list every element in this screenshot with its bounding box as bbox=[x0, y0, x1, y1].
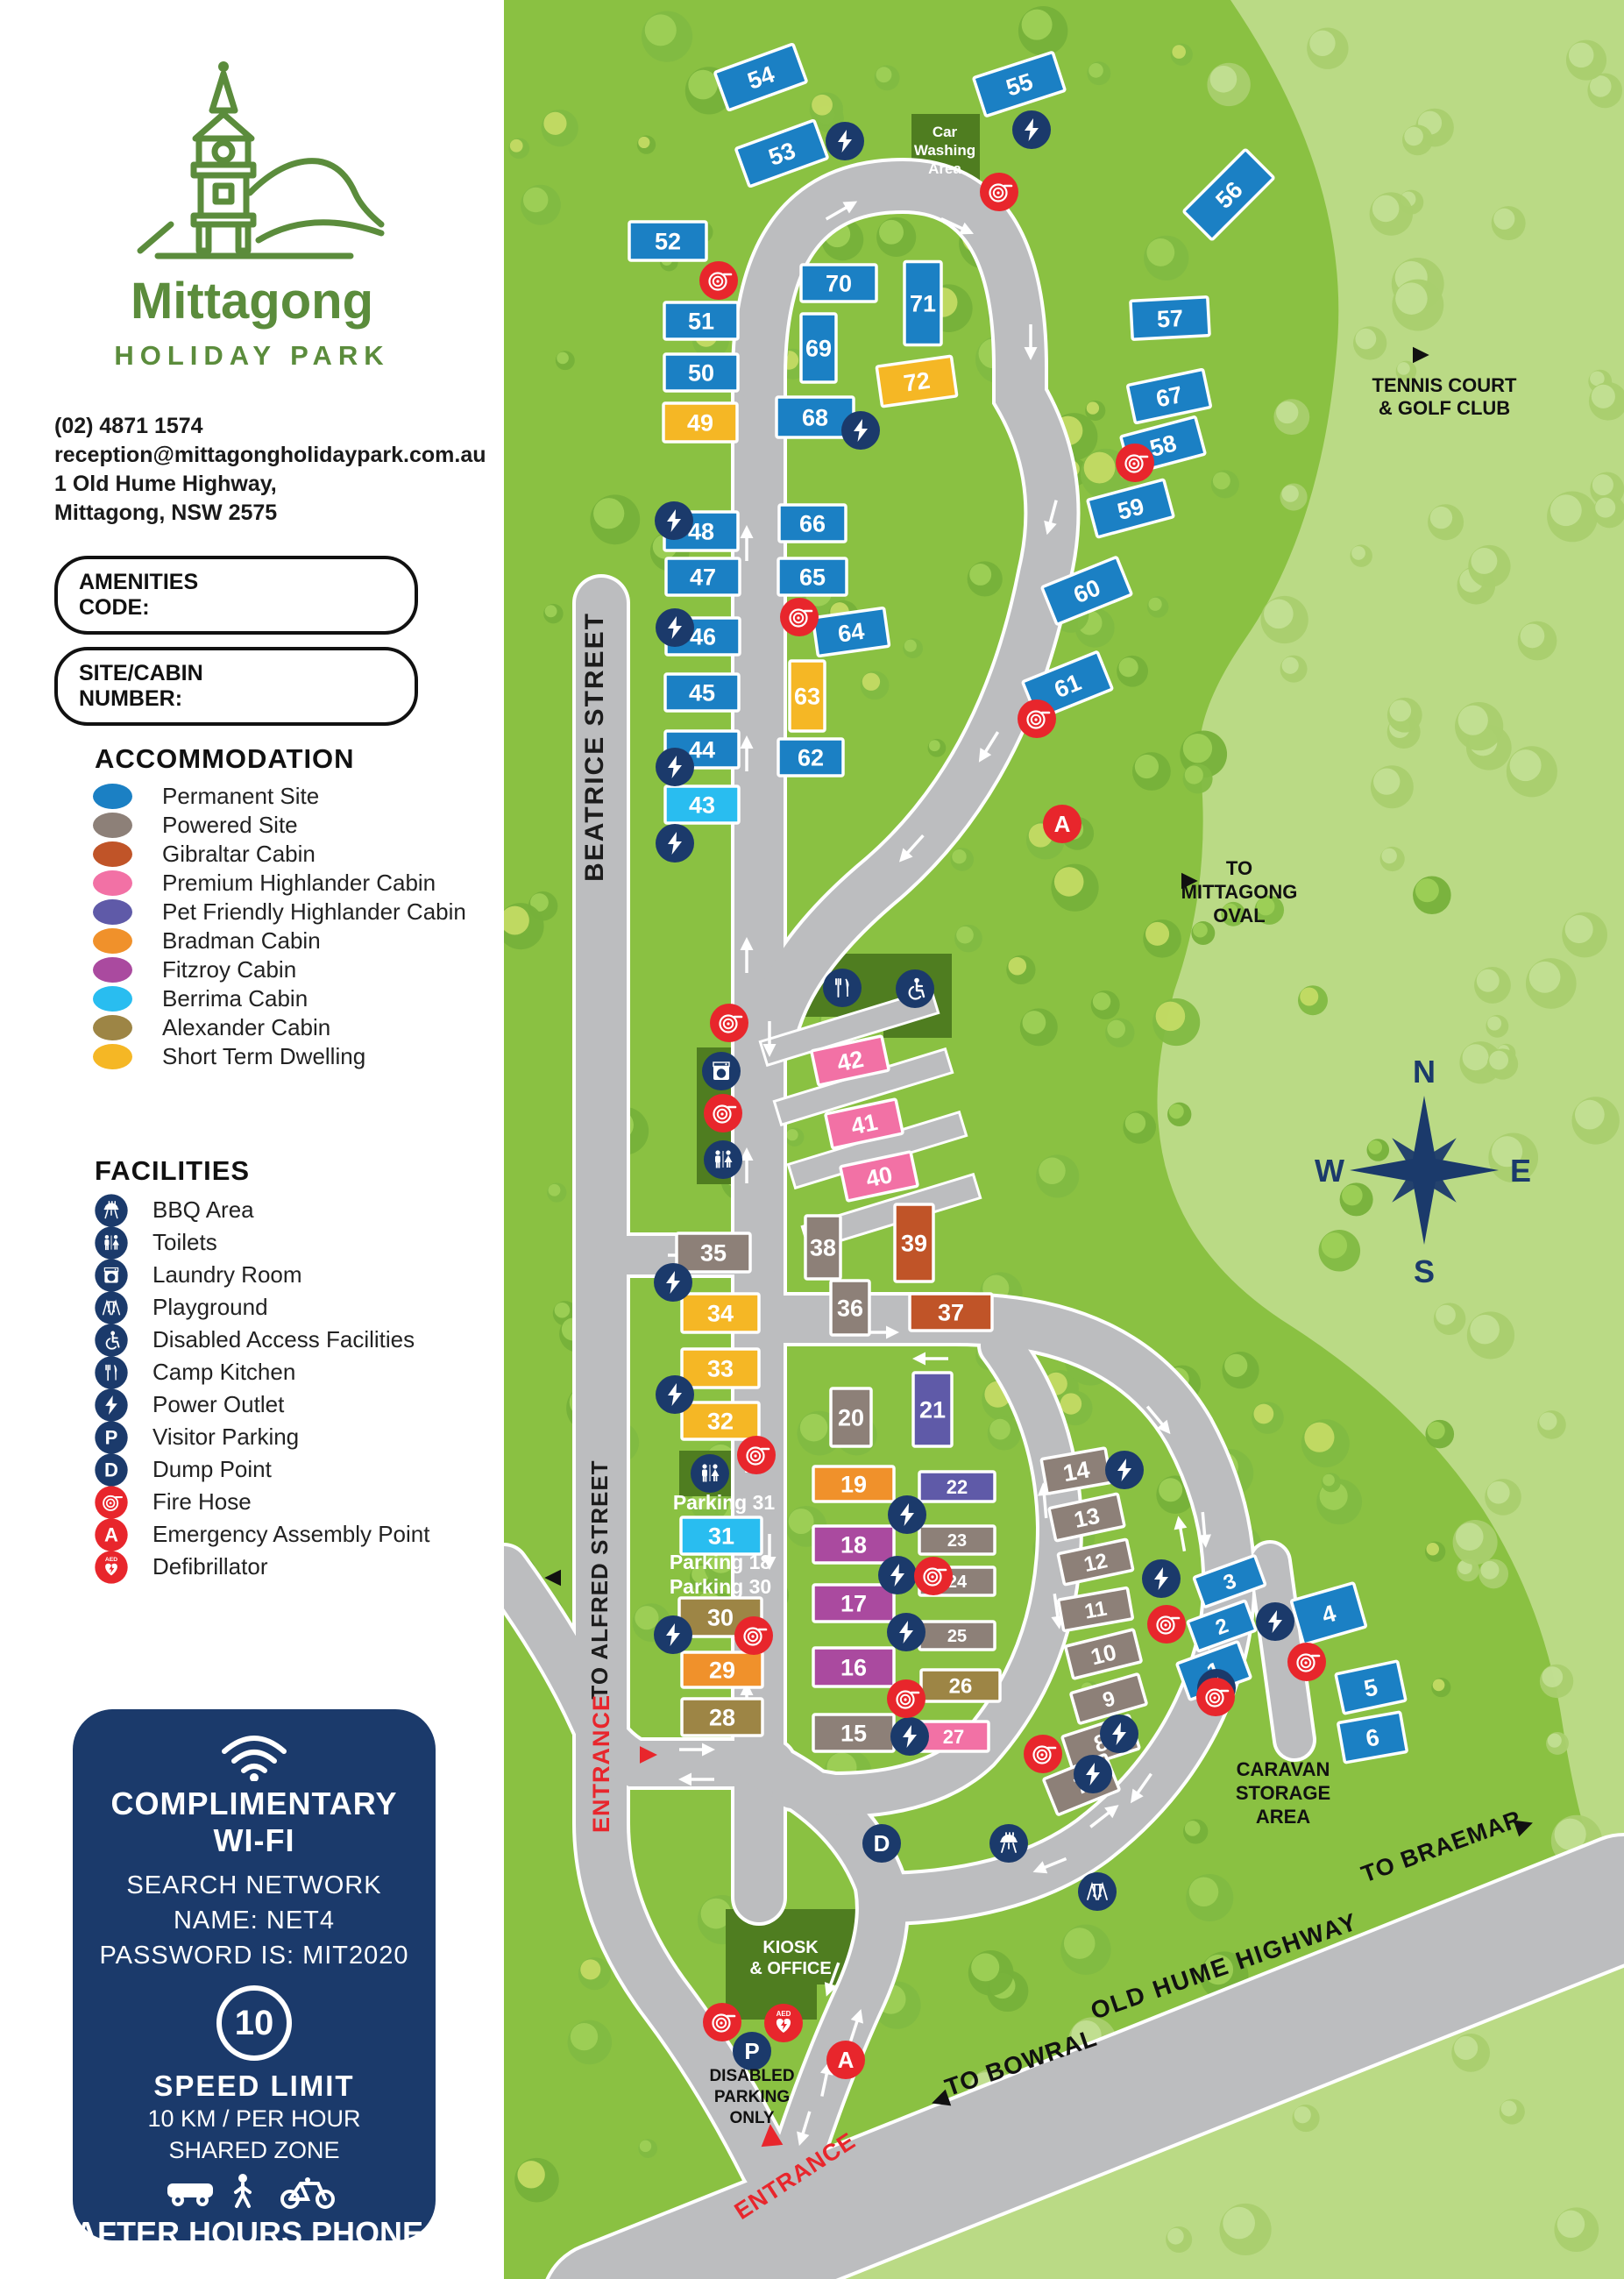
playground-icon bbox=[93, 1289, 130, 1326]
site-21: 21 bbox=[913, 1373, 952, 1446]
site-33: 33 bbox=[682, 1349, 759, 1388]
facility-bbq: BBQ Area bbox=[93, 1194, 429, 1226]
accommodation-color-swatch bbox=[93, 784, 132, 809]
facility-label: BBQ Area bbox=[152, 1196, 254, 1224]
site-37: 37 bbox=[910, 1294, 992, 1331]
wifi-icon bbox=[217, 1729, 291, 1781]
site-26: 26 bbox=[921, 1670, 1000, 1701]
amenities-code-label-2: CODE: bbox=[79, 595, 150, 620]
fire-icon bbox=[980, 173, 1018, 211]
svg-text:26: 26 bbox=[949, 1675, 973, 1699]
site-28: 28 bbox=[682, 1699, 762, 1736]
svg-text:14: 14 bbox=[1061, 1456, 1092, 1487]
accommodation-type-label: Permanent Site bbox=[162, 783, 319, 810]
svg-text:23: 23 bbox=[947, 1531, 967, 1551]
fire-icon bbox=[703, 2003, 741, 2041]
facility-dump: DDump Point bbox=[93, 1453, 429, 1486]
parkP-icon: P bbox=[93, 1419, 130, 1456]
accommodation-color-swatch bbox=[93, 1044, 132, 1069]
site-19: 19 bbox=[813, 1466, 894, 1502]
svg-text:71: 71 bbox=[910, 291, 936, 317]
power-icon bbox=[1105, 1451, 1144, 1489]
accommodation-type-label: Bradman Cabin bbox=[162, 927, 321, 955]
park-phone: (02) 4871 1574 bbox=[54, 412, 503, 441]
svg-text:47: 47 bbox=[690, 564, 716, 591]
svg-text:D: D bbox=[874, 1830, 890, 1857]
site-29: 29 bbox=[682, 1652, 762, 1687]
wifi-line-3: PASSWORD IS: MIT2020 bbox=[73, 1938, 436, 1973]
laundry-icon bbox=[93, 1257, 130, 1294]
power-icon bbox=[93, 1387, 130, 1423]
facility-label: Laundry Room bbox=[152, 1261, 302, 1289]
svg-text:35: 35 bbox=[700, 1240, 727, 1267]
svg-text:62: 62 bbox=[798, 745, 824, 771]
accommodation-color-swatch bbox=[93, 957, 132, 983]
power-icon bbox=[890, 1717, 929, 1756]
svg-text:27: 27 bbox=[943, 1726, 964, 1748]
power-icon bbox=[656, 748, 694, 786]
power-icon bbox=[656, 824, 694, 863]
fire-icon bbox=[1287, 1643, 1326, 1681]
facility-label: Defibrillator bbox=[152, 1553, 268, 1580]
svg-text:69: 69 bbox=[805, 336, 832, 362]
speed-limit-sign: 10 bbox=[216, 1985, 292, 2061]
park-address-1: 1 Old Hume Highway, bbox=[54, 470, 503, 499]
fire-icon bbox=[1196, 1678, 1235, 1716]
accommodation-type-label: Alexander Cabin bbox=[162, 1014, 330, 1041]
site-6: 6 bbox=[1338, 1712, 1408, 1763]
accommodation-color-swatch bbox=[93, 870, 132, 896]
facility-label: Visitor Parking bbox=[152, 1423, 299, 1451]
site-66: 66 bbox=[779, 505, 846, 542]
wifi-info-panel: COMPLIMENTARY WI-FI SEARCH NETWORK NAME:… bbox=[73, 1709, 436, 2240]
speed-limit-line-1: 10 KM / PER HOUR bbox=[73, 2103, 436, 2134]
svg-text:17: 17 bbox=[840, 1591, 867, 1617]
fire-icon bbox=[1116, 444, 1154, 482]
svg-text:18: 18 bbox=[840, 1532, 867, 1558]
svg-text:A: A bbox=[104, 1523, 118, 1545]
disabled-icon bbox=[896, 969, 934, 1008]
svg-text:S: S bbox=[1414, 1253, 1435, 1289]
park-email: reception@mittagongholidaypark.com.au bbox=[54, 441, 503, 470]
site-cabin-label-2: NUMBER: bbox=[79, 686, 182, 711]
site-49: 49 bbox=[663, 403, 737, 442]
facility-label: Fire Hose bbox=[152, 1488, 252, 1516]
site-52: 52 bbox=[629, 222, 706, 260]
accommodation-type-pow: Powered Site bbox=[93, 811, 466, 840]
svg-text:AED: AED bbox=[105, 1557, 117, 1563]
site-72: 72 bbox=[876, 356, 957, 407]
site-20: 20 bbox=[831, 1388, 871, 1446]
site-62: 62 bbox=[778, 739, 843, 776]
svg-text:43: 43 bbox=[689, 792, 715, 819]
site-32: 32 bbox=[682, 1402, 759, 1439]
site-18: 18 bbox=[813, 1526, 894, 1563]
site-65: 65 bbox=[778, 558, 847, 595]
fire-icon bbox=[1147, 1605, 1186, 1644]
site-43: 43 bbox=[665, 786, 739, 823]
facility-fire: Fire Hose bbox=[93, 1486, 429, 1518]
assembly-icon: A bbox=[826, 2041, 865, 2079]
fire-icon bbox=[734, 1616, 773, 1655]
svg-text:70: 70 bbox=[826, 271, 852, 297]
svg-text:21: 21 bbox=[919, 1397, 946, 1423]
site-16: 16 bbox=[813, 1648, 894, 1686]
svg-text:41: 41 bbox=[848, 1109, 880, 1140]
svg-text:AED: AED bbox=[777, 2010, 791, 2018]
svg-text:29: 29 bbox=[709, 1658, 735, 1684]
svg-text:D: D bbox=[104, 1459, 118, 1480]
power-icon bbox=[887, 1613, 925, 1651]
accommodation-type-fitz: Fitzroy Cabin bbox=[93, 955, 466, 984]
dump-icon: D bbox=[93, 1452, 130, 1488]
facility-toilets: Toilets bbox=[93, 1226, 429, 1259]
site-39: 39 bbox=[895, 1204, 933, 1281]
svg-text:65: 65 bbox=[799, 564, 826, 591]
speed-limit-line-2: SHARED ZONE bbox=[73, 2134, 436, 2166]
accommodation-type-label: Gibraltar Cabin bbox=[162, 841, 316, 868]
power-icon bbox=[888, 1495, 926, 1534]
site-25: 25 bbox=[919, 1622, 995, 1650]
shared-zone-icons bbox=[162, 2171, 346, 2210]
svg-text:19: 19 bbox=[840, 1472, 867, 1498]
site-15: 15 bbox=[813, 1715, 894, 1751]
aed-icon: AED bbox=[93, 1549, 130, 1586]
accommodation-type-label: Berrima Cabin bbox=[162, 985, 308, 1012]
park-logo bbox=[83, 53, 434, 298]
svg-text:20: 20 bbox=[838, 1405, 864, 1431]
assembly-icon: A bbox=[1043, 805, 1081, 843]
accommodation-title: ACCOMMODATION bbox=[95, 743, 355, 775]
playground-icon bbox=[1078, 1872, 1117, 1911]
wifi-line-1: SEARCH NETWORK bbox=[73, 1868, 436, 1903]
park-address-2: Mittagong, NSW 2575 bbox=[54, 499, 503, 528]
accommodation-type-short: Short Term Dwelling bbox=[93, 1042, 466, 1071]
accommodation-type-label: Short Term Dwelling bbox=[162, 1043, 365, 1070]
assembly-icon: A bbox=[93, 1516, 130, 1553]
accommodation-type-label: Pet Friendly Highlander Cabin bbox=[162, 898, 466, 926]
power-icon bbox=[656, 608, 694, 647]
parkP-icon: P bbox=[733, 2032, 771, 2070]
power-icon bbox=[1100, 1715, 1138, 1753]
accommodation-type-pet: Pet Friendly Highlander Cabin bbox=[93, 898, 466, 927]
label-entrance-west: ENTRANCE bbox=[588, 1694, 614, 1833]
fire-icon bbox=[737, 1436, 776, 1474]
facility-label: Dump Point bbox=[152, 1456, 272, 1483]
svg-text:25: 25 bbox=[947, 1627, 967, 1646]
site-31: 31 bbox=[681, 1517, 762, 1554]
label-parking-31: Parking 31 bbox=[673, 1491, 776, 1514]
site-22: 22 bbox=[919, 1472, 995, 1502]
site-57: 57 bbox=[1131, 297, 1209, 340]
svg-text:45: 45 bbox=[689, 680, 715, 706]
site-cabin-label-1: SITE/CABIN bbox=[79, 661, 203, 685]
laundry-icon bbox=[702, 1052, 741, 1090]
accommodation-legend: Permanent SitePowered SiteGibraltar Cabi… bbox=[93, 782, 466, 1071]
power-icon bbox=[656, 1375, 694, 1414]
svg-text:A: A bbox=[838, 2047, 855, 2073]
bbq-icon bbox=[93, 1192, 130, 1229]
aed-icon: AED bbox=[764, 2004, 803, 2042]
toilets-icon bbox=[691, 1454, 729, 1493]
facility-label: Toilets bbox=[152, 1229, 217, 1256]
dump-icon: D bbox=[862, 1824, 901, 1863]
accommodation-type-alex: Alexander Cabin bbox=[93, 1013, 466, 1042]
fire-icon bbox=[704, 1094, 742, 1132]
site-23: 23 bbox=[919, 1526, 995, 1554]
facility-label: Emergency Assembly Point bbox=[152, 1521, 429, 1548]
park-map: 5453555652515049484746454443706971726866… bbox=[504, 0, 1624, 2279]
power-icon bbox=[826, 122, 864, 160]
facility-label: Power Outlet bbox=[152, 1391, 284, 1418]
svg-text:57: 57 bbox=[1156, 305, 1184, 333]
svg-text:A: A bbox=[1054, 811, 1071, 837]
power-icon bbox=[878, 1556, 917, 1594]
accommodation-type-prem: Premium Highlander Cabin bbox=[93, 869, 466, 898]
svg-text:28: 28 bbox=[709, 1705, 735, 1731]
accommodation-type-perm: Permanent Site bbox=[93, 782, 466, 811]
disabled-icon bbox=[93, 1322, 130, 1359]
facility-campkitchen: Camp Kitchen bbox=[93, 1356, 429, 1388]
svg-text:16: 16 bbox=[840, 1655, 867, 1681]
accommodation-color-swatch bbox=[93, 899, 132, 925]
svg-text:P: P bbox=[105, 1426, 118, 1448]
accommodation-type-label: Powered Site bbox=[162, 812, 298, 839]
svg-text:P: P bbox=[744, 2038, 759, 2064]
svg-text:42: 42 bbox=[834, 1046, 866, 1077]
svg-text:51: 51 bbox=[688, 309, 714, 335]
after-hours-phone: 0497 035 654 bbox=[73, 2253, 436, 2279]
svg-text:68: 68 bbox=[802, 405, 828, 431]
label-tennis-court: TENNIS COURT& GOLF CLUB bbox=[1372, 374, 1518, 419]
label-beatrice-street: BEATRICE STREET bbox=[580, 612, 609, 882]
amenities-code-label-1: AMENITIES bbox=[79, 570, 198, 594]
site-64: 64 bbox=[812, 608, 889, 657]
site-17: 17 bbox=[813, 1585, 894, 1622]
campkitchen-icon bbox=[93, 1354, 130, 1391]
site-51: 51 bbox=[664, 302, 738, 339]
power-icon bbox=[841, 411, 880, 450]
facility-label: Disabled Access Facilities bbox=[152, 1326, 415, 1353]
park-name: Mittagong bbox=[0, 272, 504, 330]
accommodation-color-swatch bbox=[93, 841, 132, 867]
site-63: 63 bbox=[790, 661, 825, 731]
svg-text:33: 33 bbox=[707, 1356, 734, 1382]
fire-icon bbox=[914, 1557, 953, 1595]
svg-text:12: 12 bbox=[1081, 1549, 1110, 1577]
wifi-title-2: WI-FI bbox=[73, 1822, 436, 1859]
left-panel: Mittagong HOLIDAY PARK (02) 4871 1574 re… bbox=[0, 0, 504, 2279]
power-icon bbox=[1012, 110, 1051, 149]
fire-icon bbox=[93, 1484, 130, 1521]
site-36: 36 bbox=[831, 1281, 869, 1335]
accommodation-color-swatch bbox=[93, 813, 132, 838]
svg-text:37: 37 bbox=[938, 1300, 964, 1326]
site-69: 69 bbox=[801, 314, 836, 382]
power-icon bbox=[1142, 1559, 1181, 1598]
facility-label: Camp Kitchen bbox=[152, 1359, 295, 1386]
power-icon bbox=[1256, 1602, 1294, 1641]
facility-aed: AEDDefibrillator bbox=[93, 1551, 429, 1583]
facilities-title: FACILITIES bbox=[95, 1155, 250, 1187]
fire-icon bbox=[780, 598, 819, 636]
fire-icon bbox=[699, 261, 738, 300]
fire-icon bbox=[1018, 699, 1056, 738]
facility-label: Playground bbox=[152, 1294, 268, 1321]
fire-icon bbox=[887, 1679, 925, 1718]
site-34: 34 bbox=[682, 1294, 759, 1332]
facility-disabled: Disabled Access Facilities bbox=[93, 1324, 429, 1356]
park-subtitle: HOLIDAY PARK bbox=[0, 340, 504, 372]
site-45: 45 bbox=[665, 674, 739, 711]
svg-text:50: 50 bbox=[688, 360, 714, 387]
svg-text:39: 39 bbox=[901, 1231, 927, 1257]
svg-text:E: E bbox=[1510, 1153, 1531, 1189]
svg-text:52: 52 bbox=[655, 229, 681, 255]
site-38: 38 bbox=[805, 1216, 840, 1279]
svg-text:66: 66 bbox=[799, 511, 826, 537]
svg-text:72: 72 bbox=[902, 367, 932, 397]
after-hours-title: AFTER HOURS PHONE: bbox=[73, 2214, 436, 2253]
svg-text:64: 64 bbox=[836, 618, 866, 648]
label-to-alfred-street: TO ALFRED STREET bbox=[586, 1459, 613, 1699]
poster-page: Mittagong HOLIDAY PARK (02) 4871 1574 re… bbox=[0, 0, 1624, 2279]
accommodation-type-gib: Gibraltar Cabin bbox=[93, 840, 466, 869]
wifi-title-1: COMPLIMENTARY bbox=[73, 1786, 436, 1822]
toilets-icon bbox=[93, 1225, 130, 1261]
svg-text:13: 13 bbox=[1072, 1502, 1103, 1533]
svg-text:30: 30 bbox=[707, 1605, 734, 1631]
amenities-code-box: AMENITIES CODE: bbox=[54, 556, 418, 635]
wifi-line-2: NAME: NET4 bbox=[73, 1903, 436, 1938]
svg-text:44: 44 bbox=[689, 737, 715, 763]
svg-text:W: W bbox=[1315, 1153, 1344, 1189]
power-icon bbox=[654, 1615, 692, 1654]
power-icon bbox=[1074, 1755, 1112, 1793]
site-71: 71 bbox=[904, 262, 941, 345]
svg-text:36: 36 bbox=[837, 1296, 863, 1322]
svg-text:32: 32 bbox=[707, 1409, 734, 1435]
facility-playground: Playground bbox=[93, 1291, 429, 1324]
svg-text:11: 11 bbox=[1082, 1597, 1109, 1624]
facilities-legend: BBQ AreaToiletsLaundry RoomPlaygroundDis… bbox=[93, 1194, 429, 1583]
fire-icon bbox=[710, 1004, 748, 1042]
accommodation-color-swatch bbox=[93, 986, 132, 1012]
facility-assembly: AEmergency Assembly Point bbox=[93, 1518, 429, 1551]
svg-text:40: 40 bbox=[863, 1161, 895, 1193]
toilets-icon bbox=[704, 1140, 742, 1179]
svg-text:31: 31 bbox=[708, 1523, 734, 1550]
accommodation-type-berr: Berrima Cabin bbox=[93, 984, 466, 1013]
clocktower-logo-icon bbox=[83, 53, 434, 298]
svg-text:38: 38 bbox=[810, 1235, 836, 1261]
fire-icon bbox=[1024, 1735, 1062, 1773]
accommodation-type-label: Premium Highlander Cabin bbox=[162, 870, 436, 897]
facility-laundry: Laundry Room bbox=[93, 1259, 429, 1291]
svg-text:67: 67 bbox=[1153, 381, 1185, 413]
svg-text:N: N bbox=[1413, 1054, 1436, 1090]
power-icon bbox=[654, 1263, 692, 1302]
svg-text:22: 22 bbox=[947, 1476, 968, 1498]
campkitchen-icon bbox=[823, 969, 862, 1007]
power-icon bbox=[655, 501, 693, 540]
site-70: 70 bbox=[801, 265, 876, 302]
svg-text:15: 15 bbox=[840, 1721, 867, 1747]
site-50: 50 bbox=[664, 354, 738, 391]
bbq-icon bbox=[989, 1824, 1028, 1863]
accommodation-color-swatch bbox=[93, 1015, 132, 1040]
svg-text:49: 49 bbox=[687, 410, 713, 437]
site-35: 35 bbox=[677, 1233, 750, 1272]
svg-text:34: 34 bbox=[707, 1301, 734, 1327]
speed-limit-title: SPEED LIMIT bbox=[73, 2070, 436, 2103]
site-cabin-number-box: SITE/CABIN NUMBER: bbox=[54, 647, 418, 726]
accommodation-type-brad: Bradman Cabin bbox=[93, 927, 466, 955]
accommodation-color-swatch bbox=[93, 928, 132, 954]
facility-power: Power Outlet bbox=[93, 1388, 429, 1421]
facility-parkP: PVisitor Parking bbox=[93, 1421, 429, 1453]
svg-text:63: 63 bbox=[794, 684, 820, 710]
site-47: 47 bbox=[666, 558, 740, 595]
accommodation-type-label: Fitzroy Cabin bbox=[162, 956, 296, 983]
